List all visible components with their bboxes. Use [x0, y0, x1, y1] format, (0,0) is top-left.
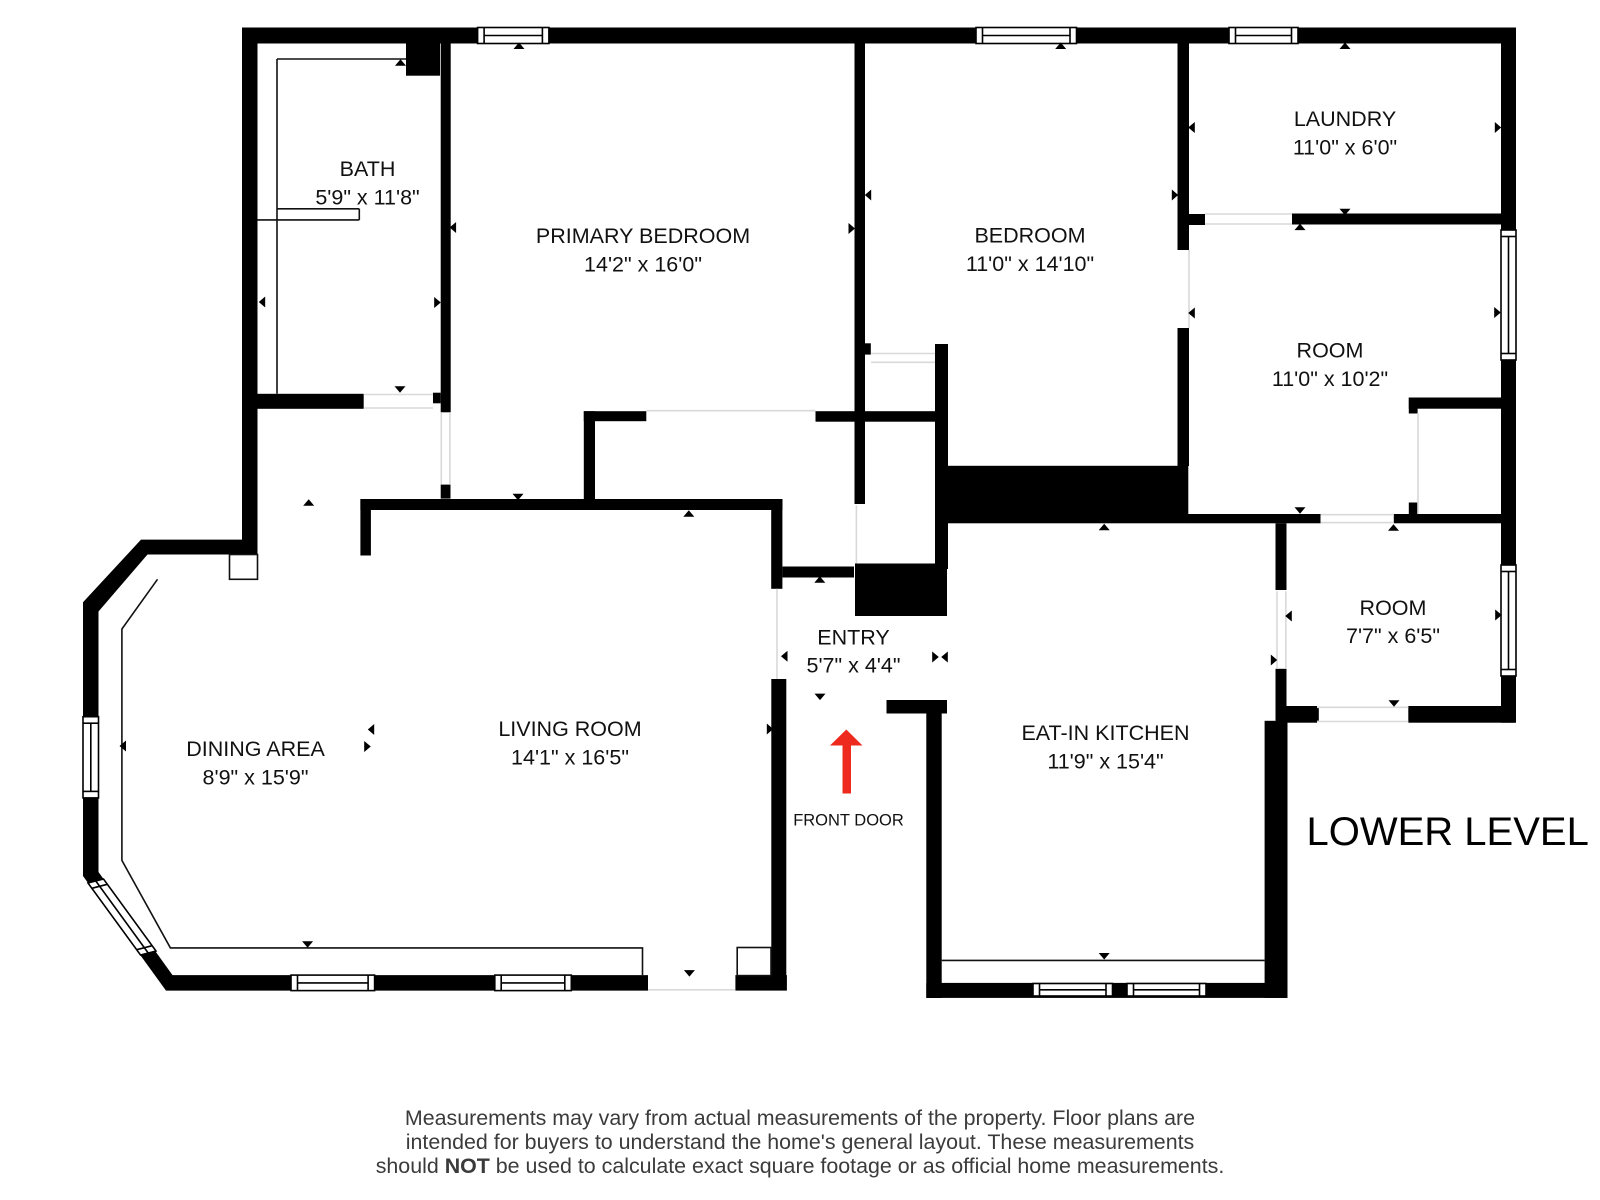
svg-text:ENTRY: ENTRY	[817, 626, 889, 650]
svg-text:5'7" x 4'4": 5'7" x 4'4"	[807, 654, 901, 678]
svg-text:ROOM: ROOM	[1297, 339, 1364, 363]
svg-text:EAT-IN KITCHEN: EAT-IN KITCHEN	[1021, 721, 1189, 745]
svg-text:5'9" x 11'8": 5'9" x 11'8"	[315, 186, 419, 210]
svg-text:11'0" x 10'2": 11'0" x 10'2"	[1272, 367, 1388, 391]
svg-text:FRONT DOOR: FRONT DOOR	[793, 811, 904, 829]
svg-text:11'9" x 15'4": 11'9" x 15'4"	[1047, 749, 1163, 773]
svg-text:ROOM: ROOM	[1360, 596, 1427, 620]
svg-text:BATH: BATH	[340, 157, 396, 181]
svg-text:11'0" x 14'10": 11'0" x 14'10"	[966, 252, 1094, 276]
svg-text:14'2" x 16'0": 14'2" x 16'0"	[584, 253, 702, 277]
svg-text:LIVING ROOM: LIVING ROOM	[498, 717, 641, 741]
svg-text:PRIMARY BEDROOM: PRIMARY BEDROOM	[536, 224, 750, 248]
svg-text:11'0" x 6'0": 11'0" x 6'0"	[1293, 136, 1397, 160]
svg-text:LAUNDRY: LAUNDRY	[1294, 107, 1396, 131]
svg-text:LOWER LEVEL: LOWER LEVEL	[1307, 810, 1589, 854]
svg-text:8'9" x 15'9": 8'9" x 15'9"	[203, 766, 309, 790]
svg-text:DINING AREA: DINING AREA	[186, 737, 325, 761]
svg-text:14'1" x 16'5": 14'1" x 16'5"	[511, 746, 629, 770]
svg-text:7'7" x 6'5": 7'7" x 6'5"	[1346, 624, 1440, 648]
svg-text:BEDROOM: BEDROOM	[974, 224, 1085, 248]
